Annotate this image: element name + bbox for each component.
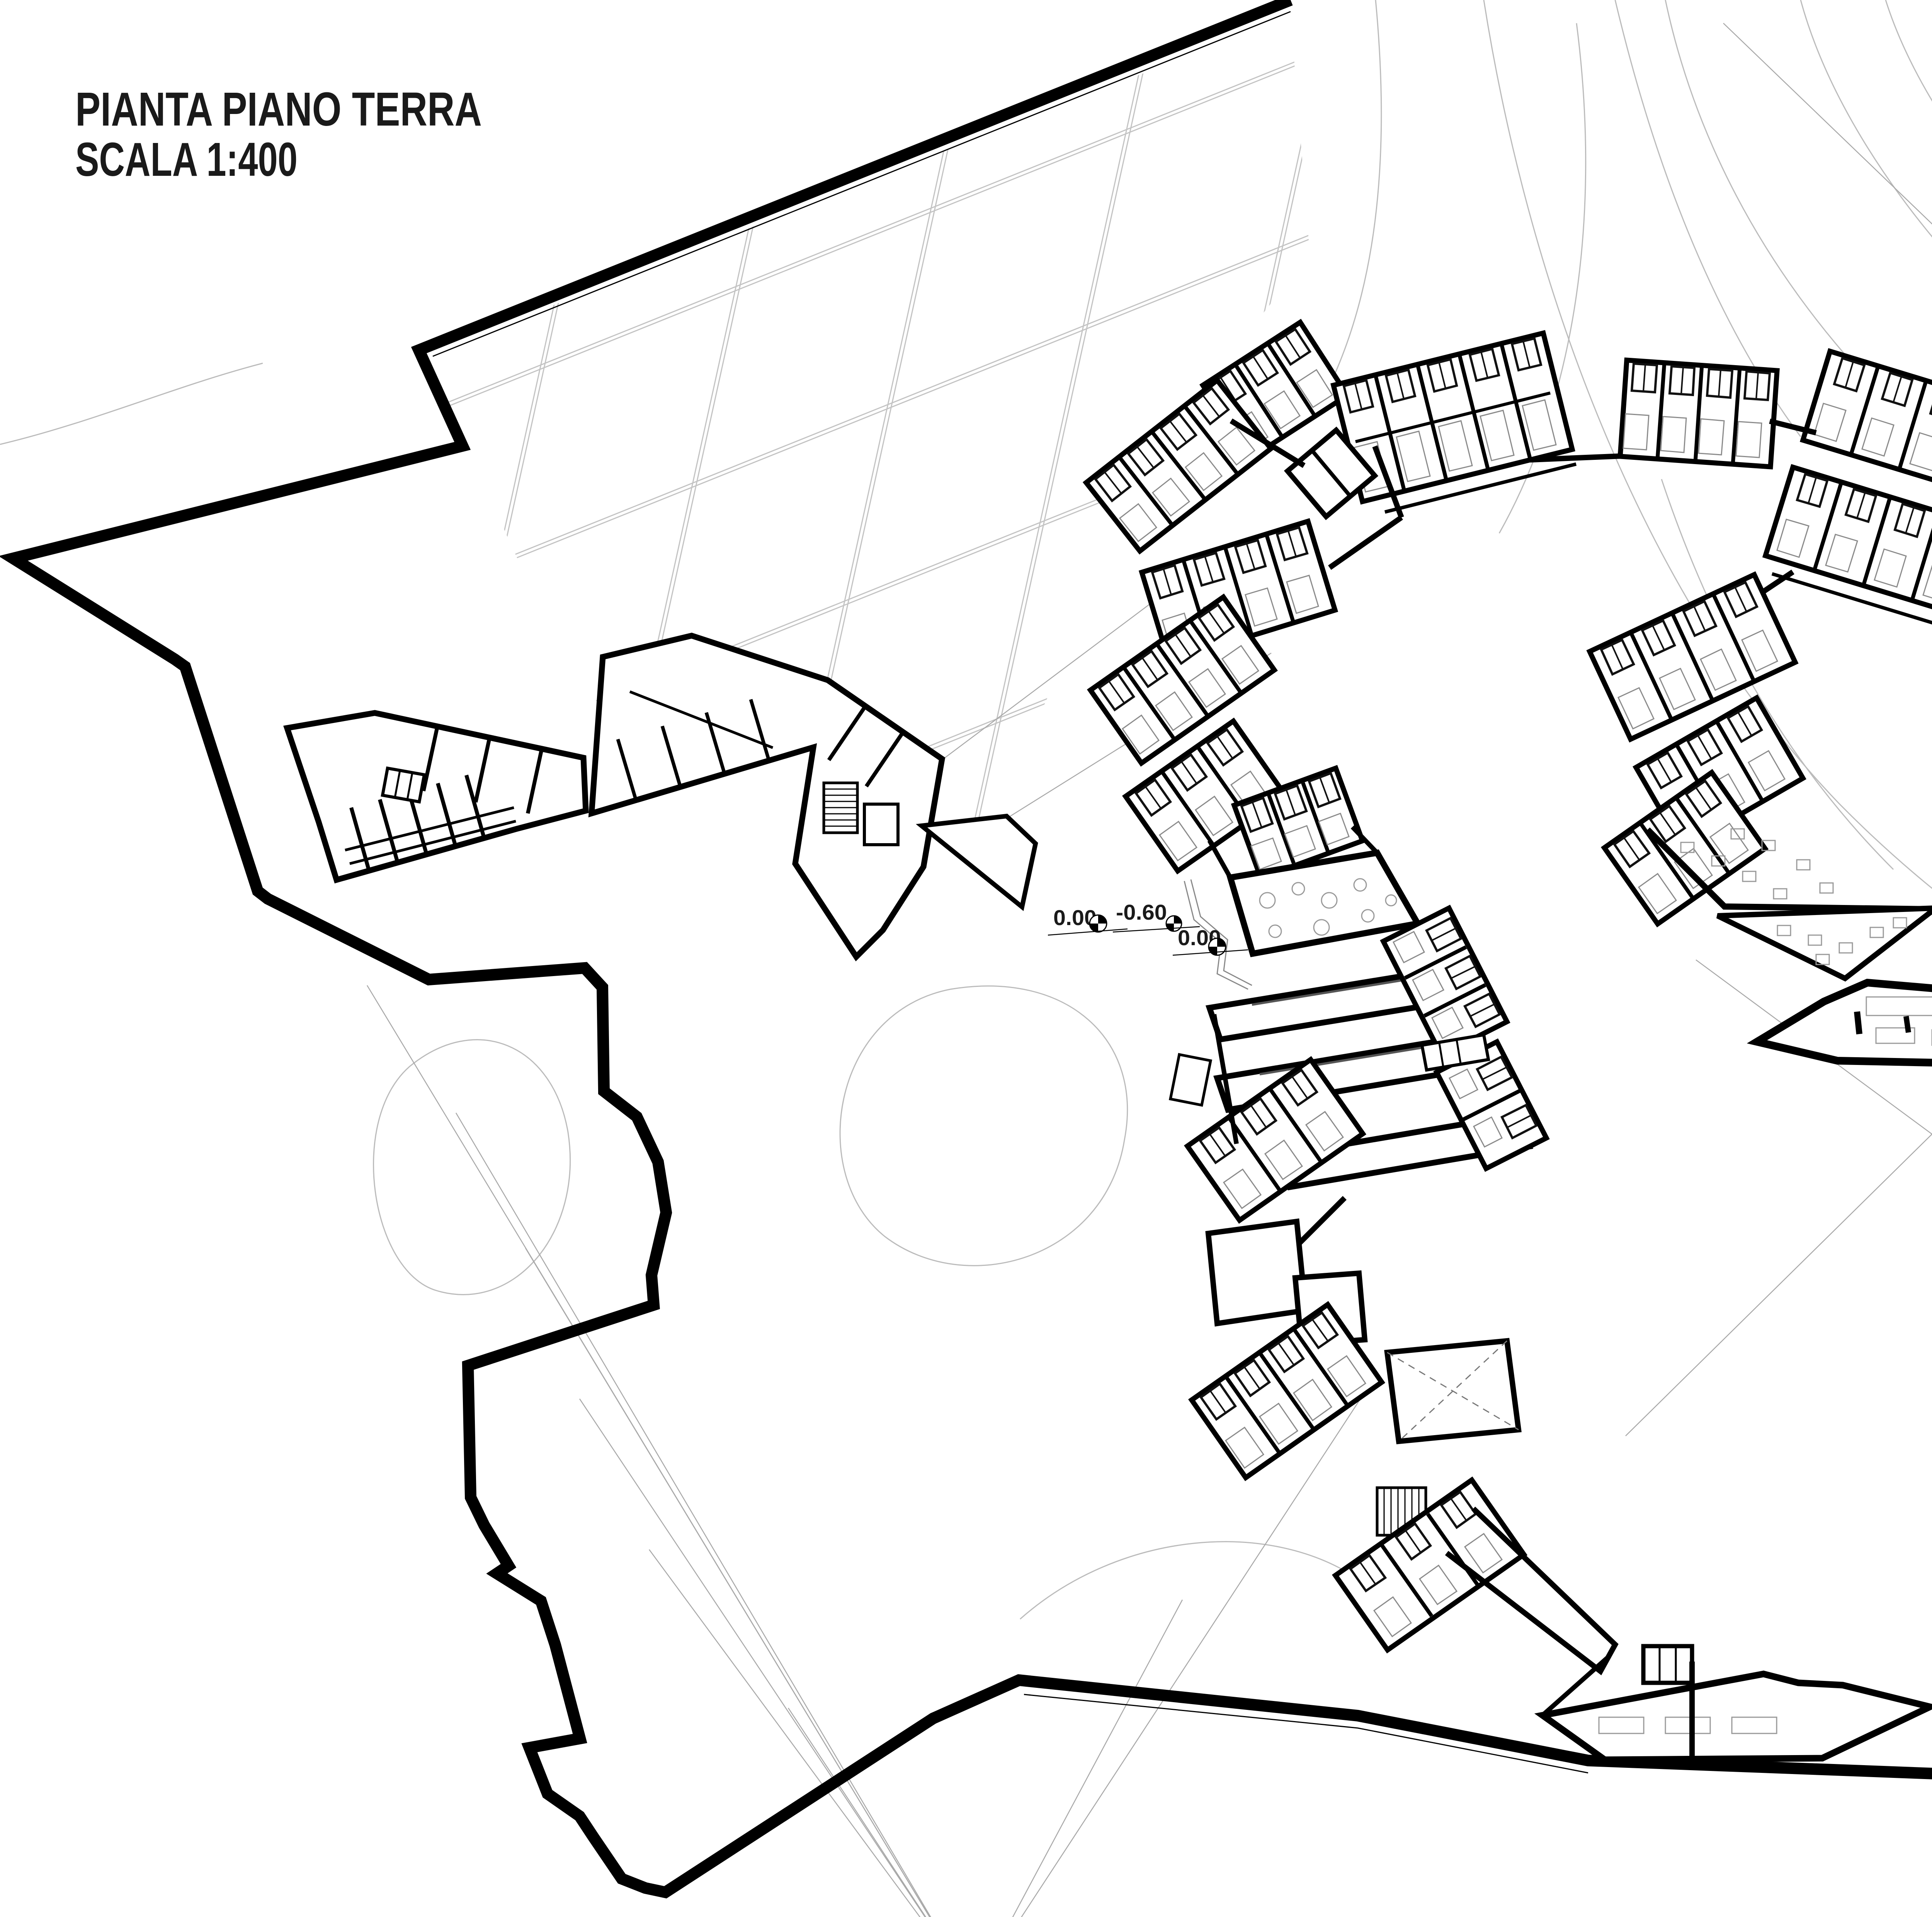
svg-text:PIANTA PIANO TERRA: PIANTA PIANO TERRA [75,83,482,136]
svg-text:-0.60: -0.60 [1116,900,1167,924]
svg-text:SCALA 1:400: SCALA 1:400 [75,133,298,186]
